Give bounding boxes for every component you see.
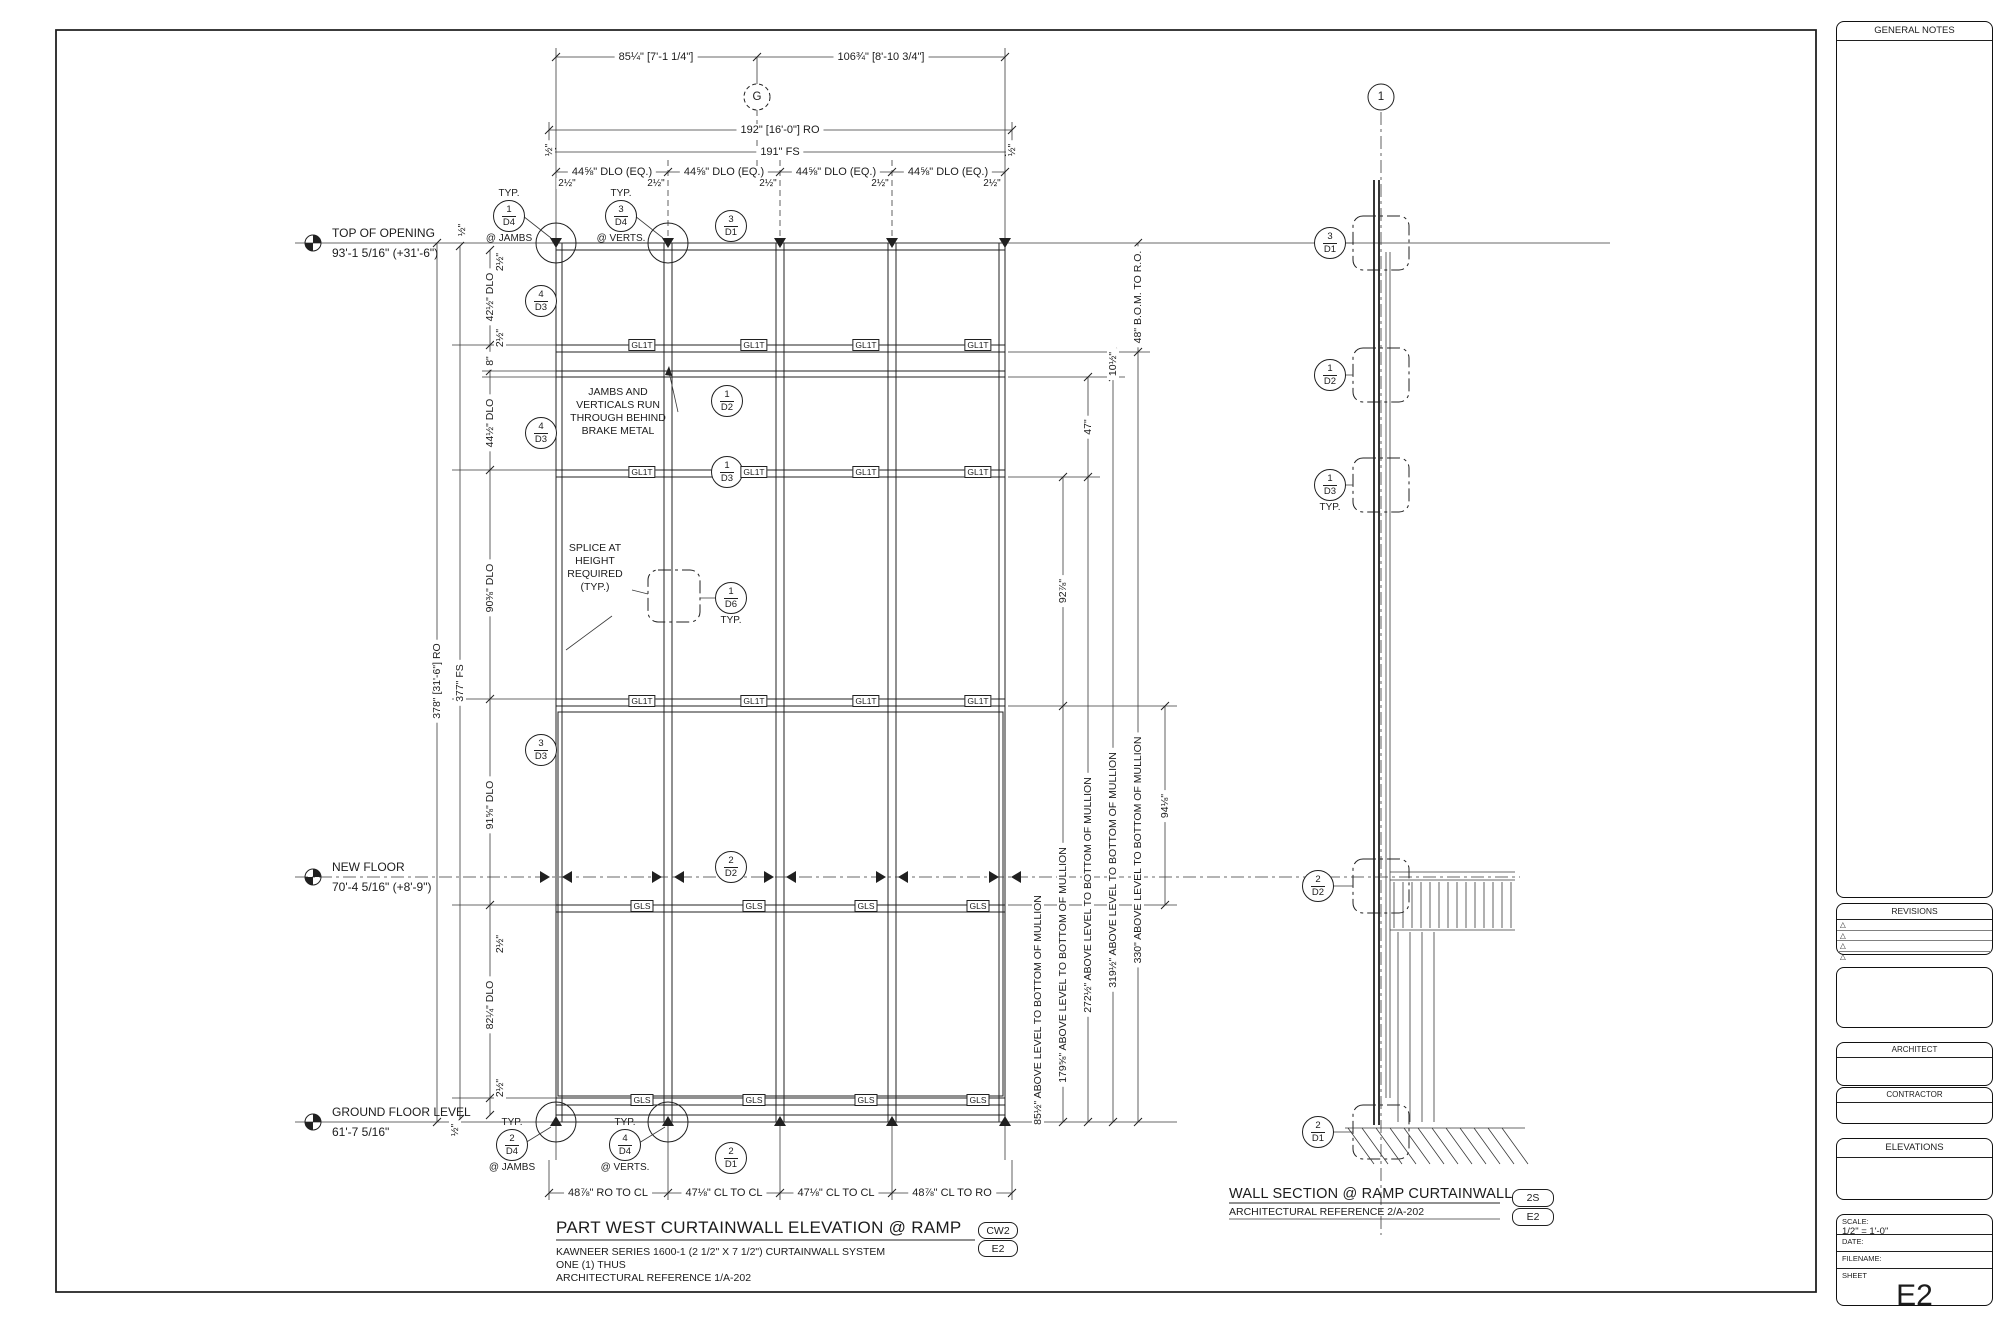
detail-callout-2-d1: 2 D1 — [715, 1142, 747, 1174]
glass-label: GLS — [854, 1094, 877, 1106]
titleblock-general-notes: GENERAL NOTES — [1836, 21, 1993, 898]
at-verts-label: @ VERTS. — [601, 1162, 650, 1173]
dim-dlo: 42½" DLO — [484, 269, 496, 326]
dim-941: 94⅛" — [1159, 790, 1171, 822]
section-callout-1-d2: 1 D2 — [1314, 359, 1346, 391]
dim-mullion: 2½" — [757, 178, 778, 189]
callout-ref: D4 — [503, 218, 515, 228]
elevation-tag-cw2: CW2 — [978, 1222, 1018, 1239]
glass-label: GL1T — [852, 695, 879, 707]
elevation-title: PART WEST CURTAINWALL ELEVATION @ RAMP — [556, 1218, 962, 1238]
callout-number: 1 — [1323, 364, 1336, 377]
titleblock-info: SCALE: 1/2" = 1'-0" DATE: FILENAME: SHEE… — [1836, 1214, 1993, 1306]
splice-detail-box — [648, 570, 700, 622]
glass-label: GLS — [966, 1094, 989, 1106]
detail-callout-3-d1: 3 D1 — [715, 210, 747, 242]
dim-above-level: 272½" ABOVE LEVEL TO BOTTOM OF MULLION — [1082, 773, 1094, 1017]
detail-callout-4-d3: 4 D3 — [525, 417, 557, 449]
at-jambs-label: @ JAMBS — [489, 1162, 535, 1173]
note-line: SPLICE AT — [545, 542, 645, 555]
callout-number: 1 — [1323, 474, 1336, 487]
drawing-linework — [0, 0, 2000, 1333]
callout-number: 4 — [618, 1134, 631, 1147]
titleblock-architect: ARCHITECT — [1836, 1042, 1993, 1086]
revision-delta-icon: △ — [1840, 931, 1846, 940]
callout-ref: D2 — [725, 869, 737, 879]
callout-number: 3 — [534, 739, 547, 752]
level-elev: 61'-7 5/16" — [332, 1125, 389, 1139]
dim-left-ro: 378" [31'-6"] RO — [431, 639, 443, 722]
revision-delta-icon: △ — [1840, 941, 1846, 950]
dim-dlo: 82¼" DLO — [484, 977, 496, 1034]
at-jambs-label: @ JAMBS — [486, 233, 532, 244]
at-verts-label: @ VERTS. — [597, 233, 646, 244]
elevations-header: ELEVATIONS — [1837, 1139, 1992, 1158]
sheet-row: SHEET E2 — [1837, 1269, 1992, 1303]
dim-half: ½" — [449, 1120, 461, 1140]
note-line: HEIGHT — [545, 555, 645, 568]
level-elev: 93'-1 5/16" (+31'-6") — [332, 246, 438, 260]
glass-label: GL1T — [852, 339, 879, 351]
dim-dlo: 8" — [484, 352, 496, 370]
dim-bottom: 48⅞" CL TO RO — [908, 1187, 996, 1199]
general-notes-header: GENERAL NOTES — [1837, 22, 1992, 41]
callout-number: 4 — [534, 422, 547, 435]
glass-label: GLS — [966, 900, 989, 912]
date-label: DATE: — [1842, 1237, 1987, 1246]
dim-bottom: 47⅛" CL TO CL — [681, 1187, 766, 1199]
dim-929: 92⅞" — [1057, 575, 1069, 607]
titleblock-revisions: REVISIONS △ △ △ △ — [1836, 903, 1993, 955]
level-name: TOP OF OPENING — [332, 226, 435, 240]
elevation-frame — [556, 243, 1005, 1122]
detail-callout-1-d6: 1 D6 — [715, 582, 747, 614]
detail-callout-4-d3: 4 D3 — [525, 285, 557, 317]
detail-callout-4-d4: 4 D4 — [609, 1129, 641, 1161]
dim-bay-dlo: 44⅝" DLO (EQ.) — [904, 166, 992, 178]
callout-number: 2 — [505, 1134, 518, 1147]
glass-label: GLS — [854, 900, 877, 912]
callout-ref: D4 — [506, 1147, 518, 1157]
dim-seg-left: 85¼" [7'-1 1/4"] — [615, 51, 698, 63]
dim-bay-dlo: 44⅝" DLO (EQ.) — [792, 166, 880, 178]
glass-label: GL1T — [628, 695, 655, 707]
detail-callout-2-d2: 2 D2 — [715, 851, 747, 883]
revision-row: △ — [1837, 920, 1992, 931]
dim-half: ½" — [456, 220, 468, 240]
dim-fs: 191" FS — [756, 146, 803, 158]
typ-label: TYP. — [611, 188, 632, 199]
detail-callout-1-d4: 1 D4 — [493, 200, 525, 232]
scale-label: SCALE: — [1842, 1217, 1987, 1226]
callout-number: 1 — [724, 587, 737, 600]
level-elev: 70'-4 5/16" (+8'-9") — [332, 880, 432, 894]
slab-lines — [1345, 872, 1525, 1128]
dim-above-level: 330" ABOVE LEVEL TO BOTTOM OF MULLION — [1132, 733, 1144, 968]
callout-number: 4 — [534, 290, 547, 303]
glass-label: GL1T — [852, 466, 879, 478]
glass-label: GLS — [742, 900, 765, 912]
benchmark-icon — [305, 869, 321, 885]
dim-left-fs: 377" FS — [454, 660, 466, 706]
wall-lines-below-slab — [1398, 932, 1434, 1122]
detail-callout-3-d3: 3 D3 — [525, 734, 557, 766]
callout-number: 3 — [724, 215, 737, 228]
dim-bom: 48" B.O.M. TO R.O. — [1132, 247, 1144, 348]
leader-lines — [523, 216, 716, 1143]
callout-ref: D2 — [721, 403, 733, 413]
revision-delta-icon: △ — [1840, 952, 1846, 961]
callout-ref: D3 — [535, 435, 547, 445]
callout-ref: D3 — [535, 752, 547, 762]
note-splice: SPLICE AT HEIGHT REQUIRED (TYP.) — [545, 542, 645, 594]
glass-label: GL1T — [740, 695, 767, 707]
drawing-sheet: G 1 85¼" [7'-1 1/4"] 106¾" [8'-10 3/4"] … — [0, 0, 2000, 1333]
dim-mullion: 2½" — [494, 249, 506, 275]
section-title: WALL SECTION @ RAMP CURTAINWALL — [1229, 1186, 1513, 1202]
note-jambs: JAMBS AND VERTICALS RUN THROUGH BEHIND B… — [558, 386, 678, 438]
callout-ref: D1 — [1312, 1134, 1324, 1144]
dim-above-level: 85½" ABOVE LEVEL TO BOTTOM OF MULLION — [1032, 891, 1044, 1129]
callout-number: 3 — [1323, 232, 1336, 245]
date-row: DATE: — [1837, 1235, 1992, 1252]
detail-callout-1-d3: 1 D3 — [711, 456, 743, 488]
typ-label: TYP. — [1320, 502, 1341, 513]
section-sub1: ARCHITECTURAL REFERENCE 2/A-202 — [1229, 1206, 1424, 1218]
section-callout-2-d1: 2 D1 — [1302, 1116, 1334, 1148]
glass-label: GL1T — [964, 695, 991, 707]
glass-label: GL1T — [628, 339, 655, 351]
section-mullion — [1374, 180, 1379, 1125]
callout-ref: D3 — [721, 474, 733, 484]
slab-hatch — [1394, 882, 1511, 928]
dim-dlo: 91⅝" DLO — [484, 777, 496, 834]
callout-ref: D1 — [725, 228, 737, 238]
dim-bottom: 47⅛" CL TO CL — [793, 1187, 878, 1199]
note-line: REQUIRED — [545, 568, 645, 581]
note-line: VERTICALS RUN — [558, 399, 678, 412]
titleblock-stamp-box — [1836, 967, 1993, 1028]
dim-mullion: 2½" — [981, 178, 1002, 189]
dim-above-level: 179⅝" ABOVE LEVEL TO BOTTOM OF MULLION — [1057, 843, 1069, 1087]
dim-47: 47" — [1082, 415, 1094, 438]
revision-delta-icon: △ — [1840, 920, 1846, 929]
revision-row: △ — [1837, 931, 1992, 942]
callout-ref: D1 — [725, 1160, 737, 1170]
callout-number: 1 — [720, 390, 733, 403]
glass-label: GL1T — [740, 466, 767, 478]
callout-number: 1 — [720, 461, 733, 474]
glass-label: GL1T — [628, 466, 655, 478]
revision-row: △ — [1837, 952, 1992, 962]
sheet-number: E2 — [1842, 1280, 1987, 1312]
section-callout-1-d3: 1 D3 — [1314, 469, 1346, 501]
dim-bottom: 48⅞" RO TO CL — [564, 1187, 652, 1199]
note-line: (TYP.) — [545, 581, 645, 594]
glass-label: GL1T — [964, 339, 991, 351]
level-name: GROUND FLOOR LEVEL — [332, 1105, 471, 1119]
glass-label: GLS — [742, 1094, 765, 1106]
elevation-sub2: ONE (1) THUS — [556, 1259, 626, 1271]
callout-number: 3 — [614, 205, 627, 218]
typ-label: TYP. — [499, 188, 520, 199]
dim-105: 10½" — [1107, 348, 1119, 380]
note-line: BRAKE METAL — [558, 425, 678, 438]
filename-label: FILENAME: — [1842, 1254, 1987, 1263]
dim-mullion: 2½" — [645, 178, 666, 189]
dim-mullion: 2½" — [494, 931, 506, 957]
revisions-header: REVISIONS — [1837, 904, 1992, 920]
detail-callout-2-d4: 2 D4 — [496, 1129, 528, 1161]
callout-ref: D2 — [1312, 888, 1324, 898]
dim-mullion: 2½" — [556, 178, 577, 189]
note-line: JAMBS AND — [558, 386, 678, 399]
typ-label: TYP. — [502, 1117, 523, 1128]
callout-number: 2 — [724, 856, 737, 869]
contractor-header: CONTRACTOR — [1837, 1088, 1992, 1103]
callout-number: 2 — [1311, 875, 1324, 888]
dim-mullion: 2½" — [869, 178, 890, 189]
dim-dlo: 90⅜" DLO — [484, 560, 496, 617]
level-name: NEW FLOOR — [332, 860, 405, 874]
architect-header: ARCHITECT — [1837, 1043, 1992, 1058]
mullion-lines — [562, 243, 999, 1122]
filename-row: FILENAME: — [1837, 1252, 1992, 1269]
detail-callout-3-d4: 3 D4 — [605, 200, 637, 232]
typ-label: TYP. — [615, 1117, 636, 1128]
callout-ref: D4 — [619, 1147, 631, 1157]
section-glass — [1386, 252, 1390, 1098]
dim-bay-dlo: 44⅝" DLO (EQ.) — [680, 166, 768, 178]
elevation-tag-e2: E2 — [978, 1240, 1018, 1257]
dim-above-level: 319½" ABOVE LEVEL TO BOTTOM OF MULLION — [1107, 748, 1119, 992]
transom-lines — [556, 250, 1005, 1115]
dim-ro: 192" [16'-0"] RO — [736, 124, 823, 136]
callout-ref: D6 — [725, 600, 737, 610]
typ-label: TYP. — [721, 615, 742, 626]
section-callout-2-d2: 2 D2 — [1302, 870, 1334, 902]
detail-callout-1-d2: 1 D2 — [711, 385, 743, 417]
glass-label: GLS — [630, 1094, 653, 1106]
dim-seg-right: 106¾" [8'-10 3/4"] — [834, 51, 929, 63]
note-line: THROUGH BEHIND — [558, 412, 678, 425]
glass-label: GL1T — [964, 466, 991, 478]
dim-mullion: 2½" — [494, 325, 506, 351]
glass-label: GL1T — [740, 339, 767, 351]
dim-half: ½" — [1006, 140, 1018, 160]
glass-label: GLS — [630, 900, 653, 912]
benchmark-icon — [305, 235, 321, 251]
grid-label-g: G — [753, 91, 762, 103]
section-tag-e2: E2 — [1512, 1208, 1554, 1226]
elevation-sub3: ARCHITECTURAL REFERENCE 1/A-202 — [556, 1272, 751, 1284]
callout-ref: D3 — [1324, 487, 1336, 497]
sheet-border — [56, 30, 1816, 1292]
spandrel-stipple — [558, 712, 1003, 1096]
dim-bay-dlo: 44⅝" DLO (EQ.) — [568, 166, 656, 178]
dim-mullion: 2½" — [494, 1075, 506, 1101]
section-tag-2s: 2S — [1512, 1189, 1554, 1207]
section-callout-3-d1: 3 D1 — [1314, 227, 1346, 259]
callout-ref: D2 — [1324, 377, 1336, 387]
revision-row: △ — [1837, 941, 1992, 952]
callout-ref: D4 — [615, 218, 627, 228]
grid-label-1: 1 — [1378, 91, 1384, 103]
titleblock-contractor: CONTRACTOR — [1836, 1087, 1993, 1124]
callout-number: 2 — [724, 1147, 737, 1160]
titleblock-elevations: ELEVATIONS — [1836, 1138, 1993, 1200]
callout-number: 2 — [1311, 1121, 1324, 1134]
callout-ref: D1 — [1324, 245, 1336, 255]
dim-dlo: 44½" DLO — [484, 395, 496, 452]
elevation-sub1: KAWNEER SERIES 1600-1 (2 1/2" X 7 1/2") … — [556, 1246, 885, 1258]
callout-number: 1 — [502, 205, 515, 218]
callout-ref: D3 — [535, 303, 547, 313]
scale-row: SCALE: 1/2" = 1'-0" — [1837, 1215, 1992, 1235]
dim-half: ½" — [543, 140, 555, 160]
benchmark-icon — [305, 1114, 321, 1130]
